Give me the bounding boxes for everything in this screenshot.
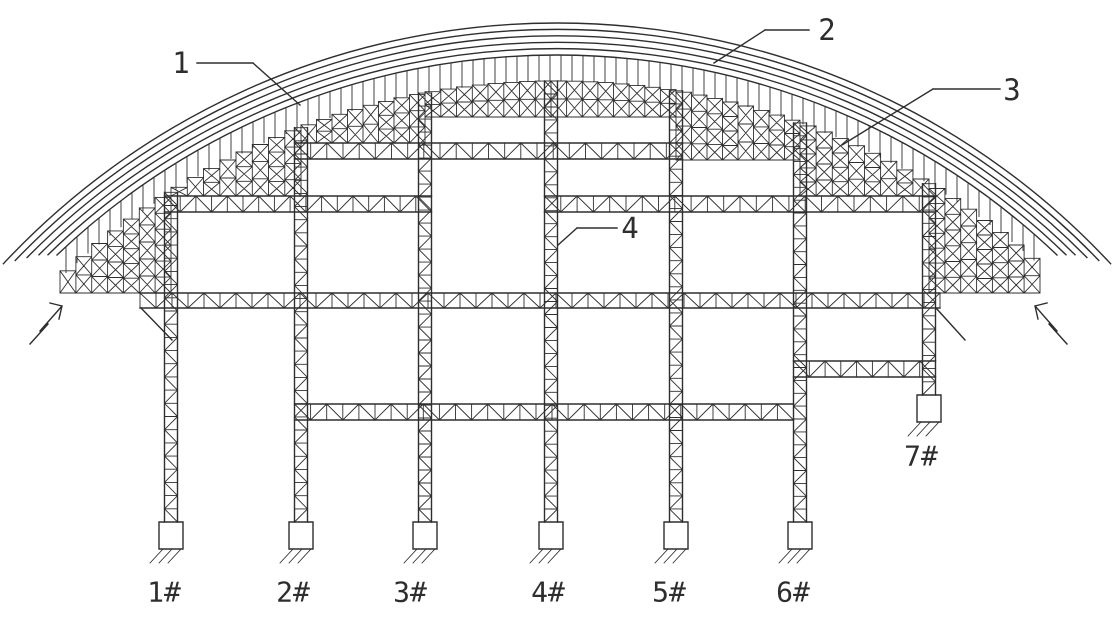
support-label-7: 7#: [904, 440, 938, 473]
support-label-4: 4#: [531, 576, 565, 609]
lattice-columns: [165, 81, 936, 522]
support-label-3: 3#: [393, 576, 427, 609]
support-label-5: 5#: [652, 576, 686, 609]
structure-drawing: [0, 0, 1115, 622]
support-label-2: 2#: [276, 576, 310, 609]
support-label-1: 1#: [147, 576, 181, 609]
callout-4-label: 4: [621, 211, 638, 245]
callout-2-label: 2: [818, 13, 835, 47]
callout-3-label: 3: [1003, 73, 1020, 107]
callout-1-label: 1: [172, 46, 189, 80]
truss-beams: [140, 143, 940, 420]
ground-anchors: [30, 303, 1067, 344]
support-label-6: 6#: [776, 576, 810, 609]
drawing-canvas: 1 2 3 4 1# 2# 3# 4# 5# 6# 7#: [0, 0, 1115, 622]
